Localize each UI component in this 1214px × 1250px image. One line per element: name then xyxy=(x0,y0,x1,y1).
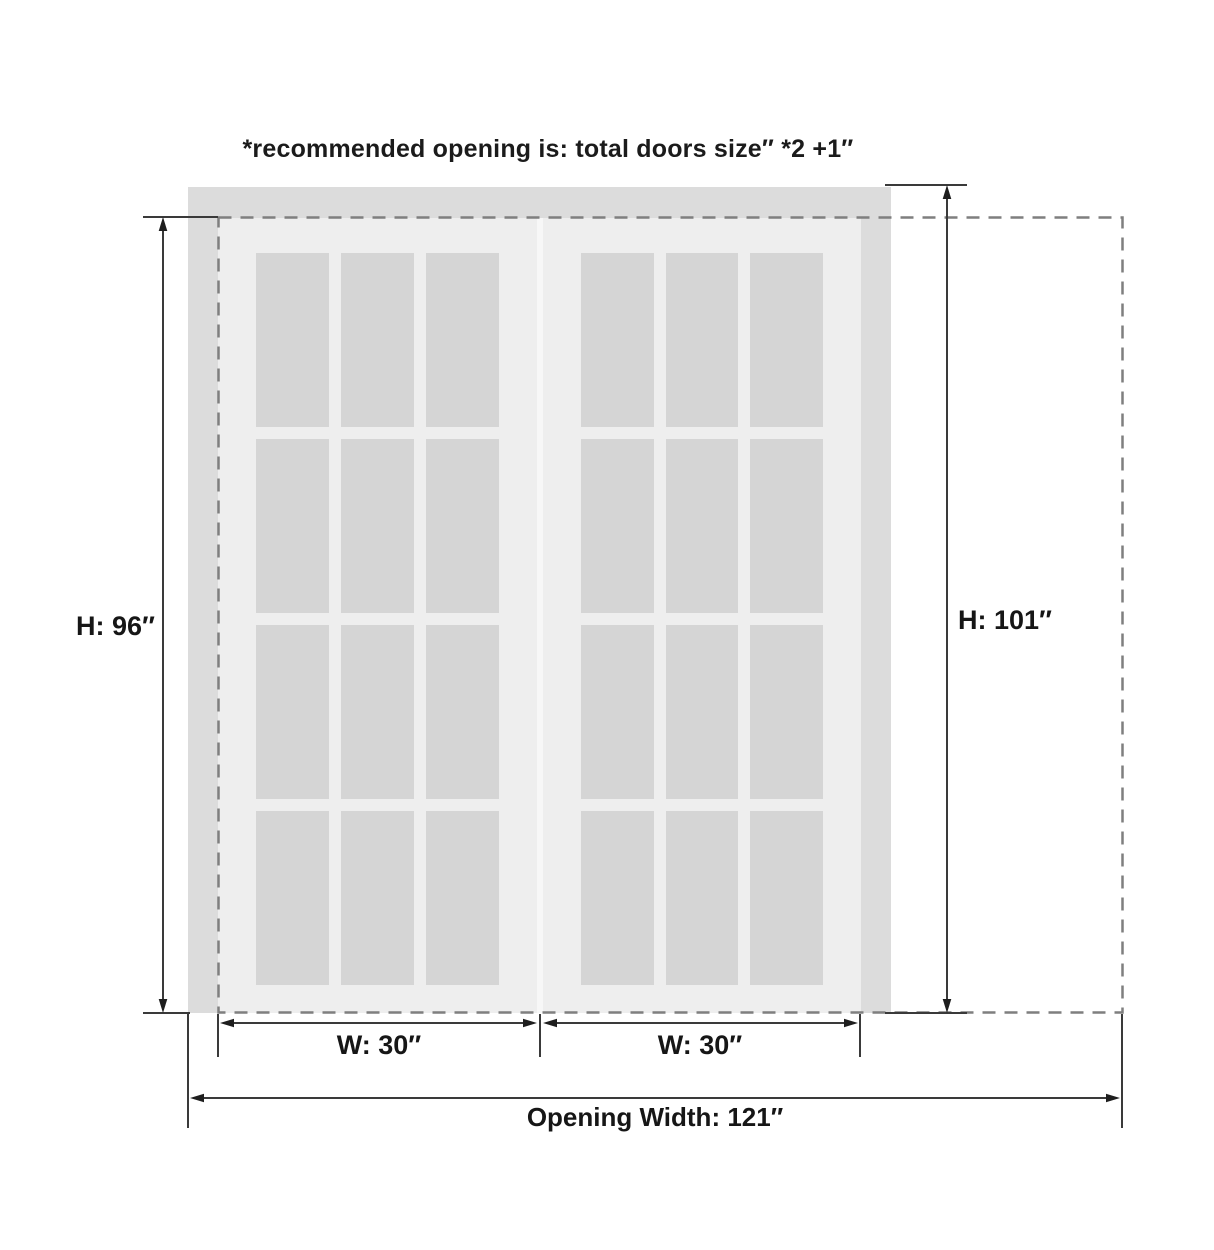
door-width-right-label: W: 30″ xyxy=(540,1031,860,1061)
door-width-left-label: W: 30″ xyxy=(218,1031,540,1061)
door-dimension-diagram: *recommended opening is: total doors siz… xyxy=(0,0,1214,1250)
arrow-right-icon xyxy=(523,1019,537,1028)
arrow-left-icon xyxy=(220,1019,234,1028)
arrow-down-icon xyxy=(159,999,168,1013)
arrow-right-icon xyxy=(1106,1094,1120,1103)
arrow-right-icon xyxy=(844,1019,858,1028)
arrow-left-icon xyxy=(543,1019,557,1028)
arrow-up-icon xyxy=(943,185,952,199)
opening-height-label: H: 101″ xyxy=(958,606,1052,636)
arrow-down-icon xyxy=(943,999,952,1013)
door-height-label: H: 96″ xyxy=(40,612,155,642)
arrow-left-icon xyxy=(190,1094,204,1103)
opening-height-dimension xyxy=(885,185,967,1013)
opening-width-label: Opening Width: 121″ xyxy=(188,1103,1122,1132)
arrow-up-icon xyxy=(159,217,168,231)
